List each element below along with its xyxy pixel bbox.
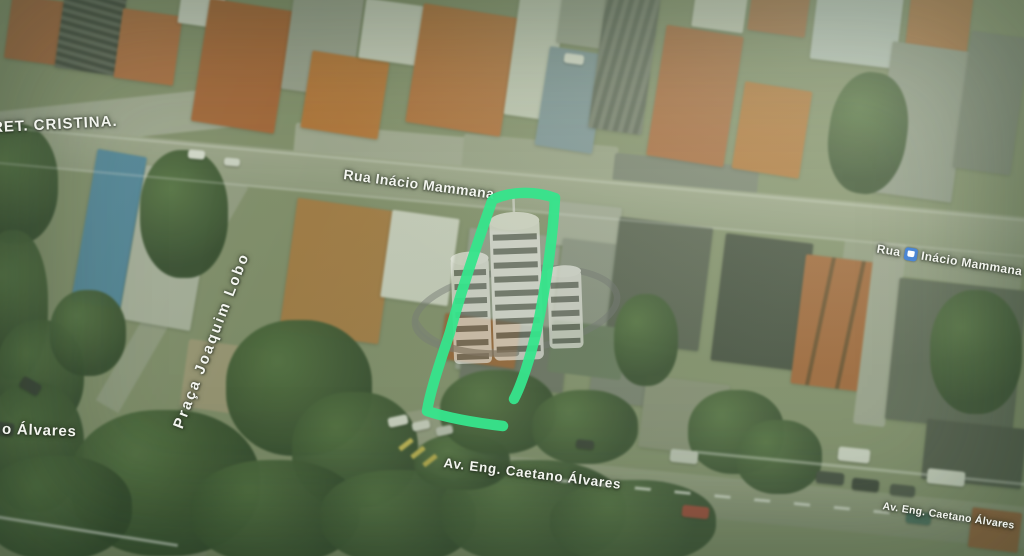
tree-cluster (50, 290, 126, 376)
car-white (224, 157, 241, 166)
car-silver (669, 449, 698, 465)
roof-orange (191, 0, 293, 134)
bus-transit-icon[interactable] (903, 246, 918, 261)
tree-cluster (532, 390, 638, 464)
roof-orange (405, 3, 519, 137)
roof-orange (113, 8, 182, 86)
car-truck-white (926, 468, 965, 487)
tree-cluster (140, 150, 228, 278)
roof-orange (646, 25, 744, 168)
car-van-white (837, 446, 870, 463)
roof-orange (747, 0, 811, 38)
roof-white (380, 210, 460, 307)
street-label-alvares-partial: o Álvares (2, 421, 77, 441)
roof-orange (300, 50, 389, 139)
aerial-map-view[interactable]: RET. CRISTINA. Rua Inácio Mammana Rua In… (0, 0, 1024, 556)
tree-cluster (0, 456, 132, 556)
roof-property-orange (439, 313, 521, 369)
tree-cluster (614, 294, 678, 386)
bus-glyph (907, 250, 915, 257)
car-white (188, 149, 206, 159)
roof-orange (732, 81, 813, 179)
tree-cluster (930, 290, 1022, 414)
roof-white (358, 0, 424, 66)
roof-white (691, 0, 749, 33)
car-dark (576, 439, 595, 450)
car-dark (815, 471, 844, 486)
